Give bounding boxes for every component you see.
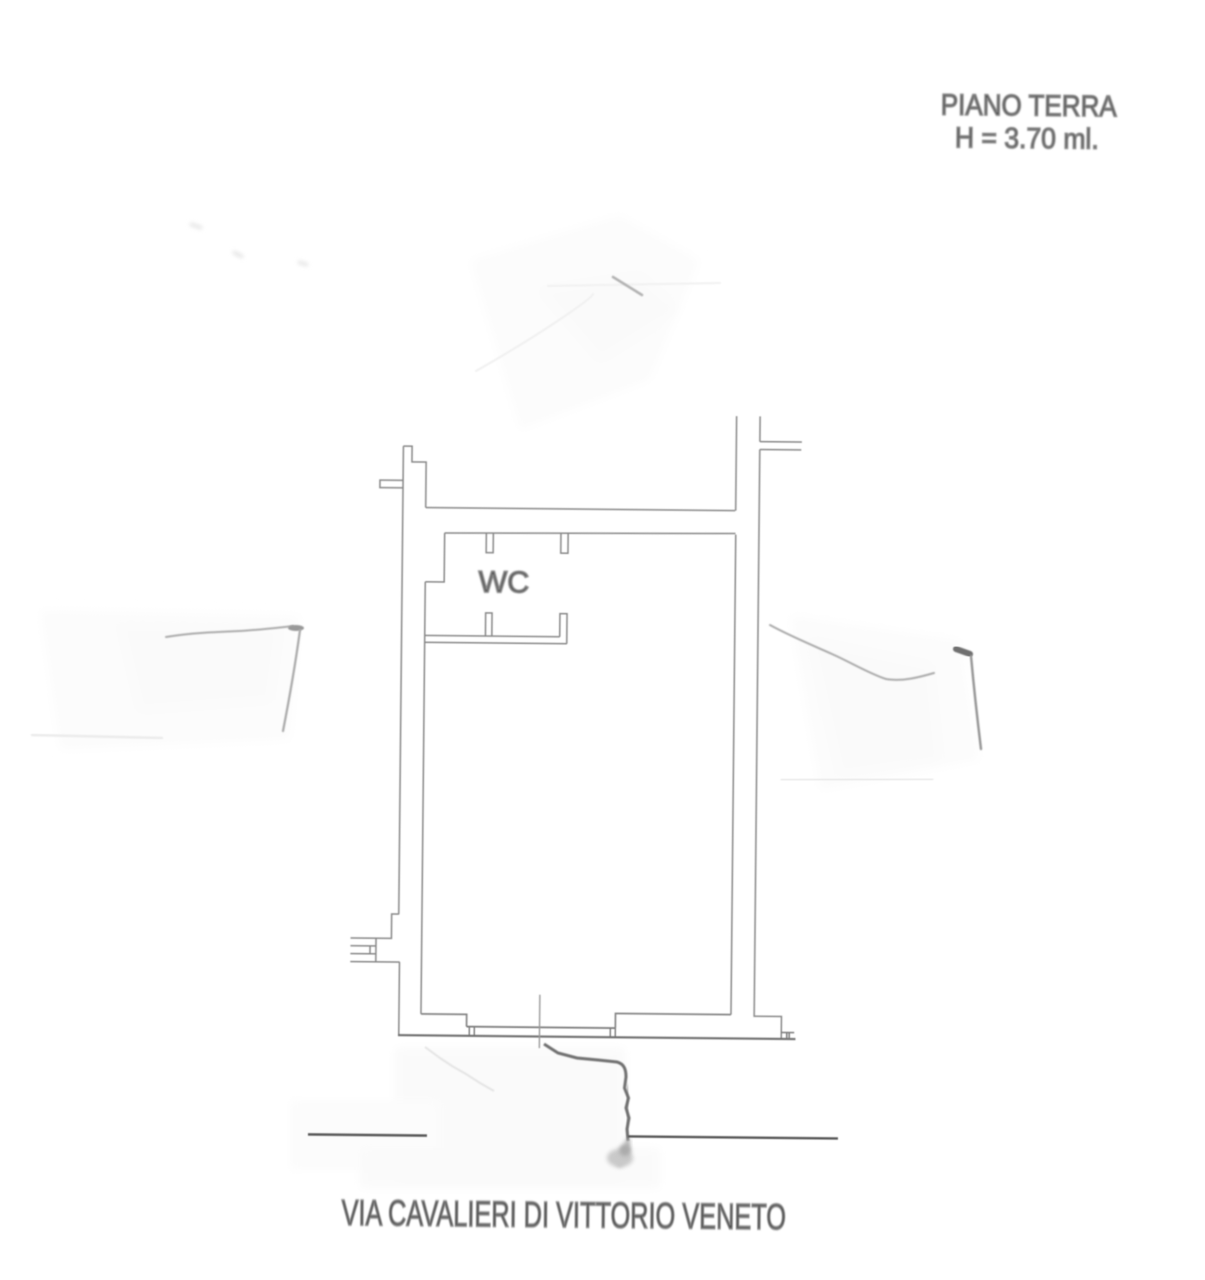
svg-text:VIA CAVALIERI DI VITTORIO VENE: VIA CAVALIERI DI VITTORIO VENETO bbox=[341, 1193, 786, 1238]
svg-text:PIANO TERRA: PIANO TERRA bbox=[941, 88, 1118, 123]
svg-text:WC: WC bbox=[478, 565, 529, 600]
svg-text:H = 3.70 ml.: H = 3.70 ml. bbox=[955, 121, 1099, 155]
